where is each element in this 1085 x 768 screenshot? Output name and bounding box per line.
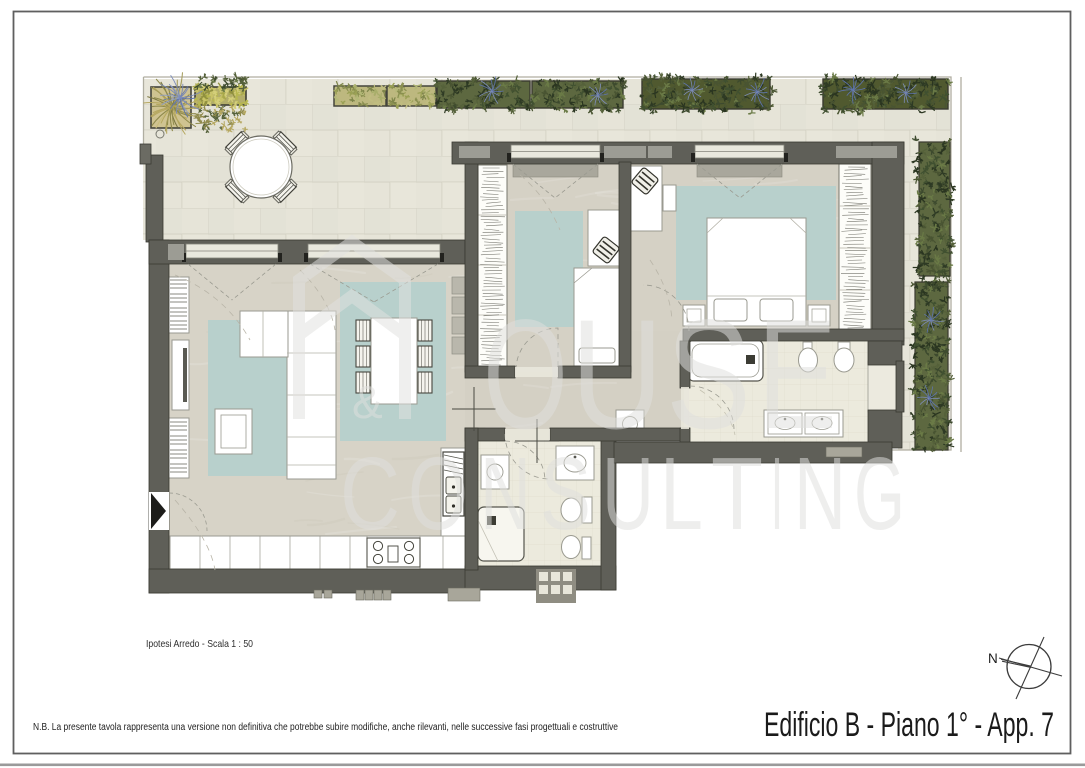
svg-text:N: N bbox=[480, 436, 531, 551]
svg-text:Ipotesi Arredo - Scala 1 : 50: Ipotesi Arredo - Scala 1 : 50 bbox=[146, 638, 253, 650]
svg-text:C: C bbox=[340, 436, 400, 551]
svg-text:O: O bbox=[408, 436, 468, 551]
svg-text:N.B. La presente tavola rappre: N.B. La presente tavola rappresenta una … bbox=[33, 722, 618, 733]
svg-text:L: L bbox=[660, 436, 703, 551]
svg-text:Edificio B - Piano 1° - App. 7: Edificio B - Piano 1° - App. 7 bbox=[764, 706, 1054, 744]
svg-text:G: G bbox=[854, 436, 905, 551]
svg-text:N: N bbox=[794, 436, 846, 551]
svg-text:U: U bbox=[602, 436, 654, 551]
svg-text:T: T bbox=[711, 436, 763, 551]
svg-text:N: N bbox=[988, 651, 998, 666]
svg-text:S: S bbox=[540, 436, 591, 551]
svg-text:I: I bbox=[771, 436, 783, 551]
svg-text:&: & bbox=[352, 376, 383, 428]
